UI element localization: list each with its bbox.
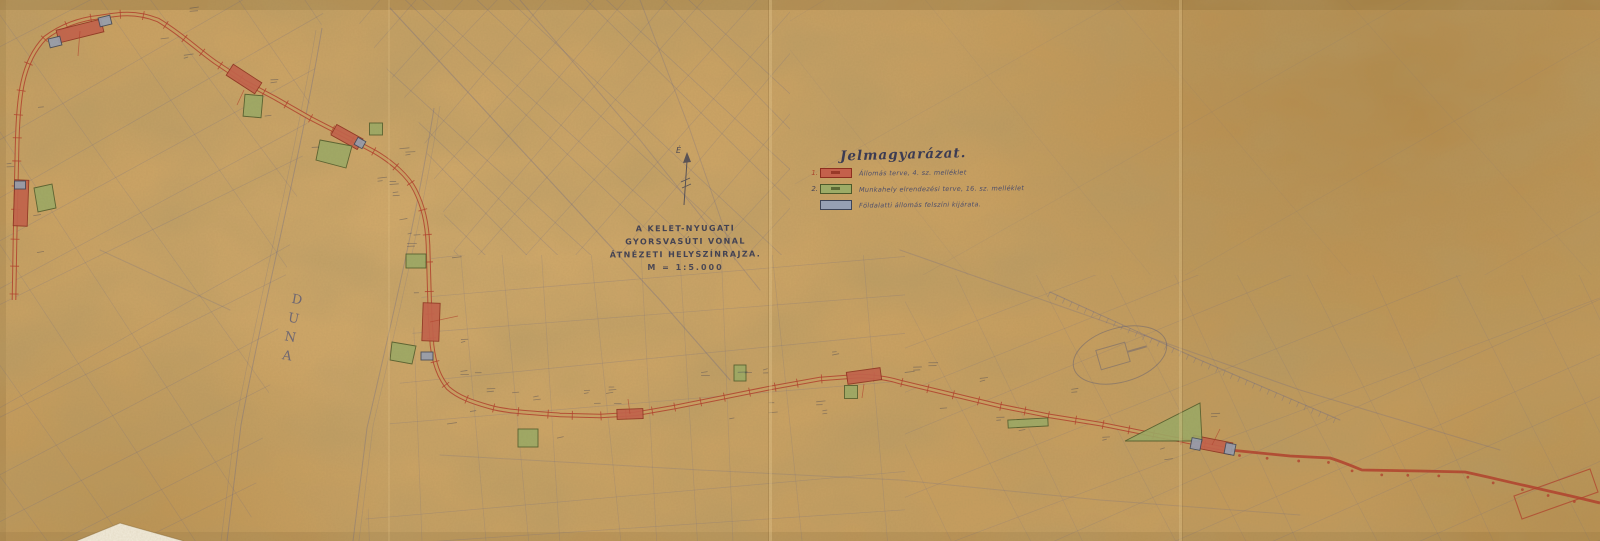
legend-label-exit: Földalatti állomás felszíni kijárata.	[859, 200, 981, 209]
legend: Jelmagyarázat. 1. Állomás terve, 4. sz. …	[806, 146, 1026, 210]
legend-label-worksite: Munkahely elrendezési terve, 16. sz. mel…	[859, 184, 1024, 194]
legend-num-2: 2.	[806, 185, 818, 193]
station-symbol-swatch	[820, 168, 852, 178]
legend-row-station: 1. Állomás terve, 4. sz. melléklet	[806, 167, 1026, 178]
exit-symbol-swatch	[820, 200, 852, 210]
map-title-block: A KELET-NYUGATI GYORSVASÚTI VONAL ÁTNÉZE…	[598, 222, 773, 272]
legend-row-exit: Földalatti állomás felszíni kijárata.	[806, 199, 1026, 210]
map-graphics	[0, 0, 1600, 541]
legend-title: Jelmagyarázat.	[840, 144, 1026, 165]
paper-grain	[0, 0, 1600, 541]
worksite-symbol-swatch	[820, 184, 852, 194]
legend-row-worksite: 2. Munkahely elrendezési terve, 16. sz. …	[806, 183, 1026, 194]
map-canvas: A KELET-NYUGATI GYORSVASÚTI VONAL ÁTNÉZE…	[0, 0, 1600, 541]
legend-label-station: Állomás terve, 4. sz. melléklet	[859, 168, 967, 177]
north-label: É	[676, 146, 681, 155]
map-scale: M = 1:5.000	[598, 263, 773, 272]
map-title-line2: ÁTNÉZETI HELYSZÍNRAJZA.	[598, 247, 773, 261]
map-title-line1: A KELET-NYUGATI GYORSVASÚTI VONAL	[598, 221, 773, 248]
legend-num-1: 1.	[806, 169, 818, 177]
